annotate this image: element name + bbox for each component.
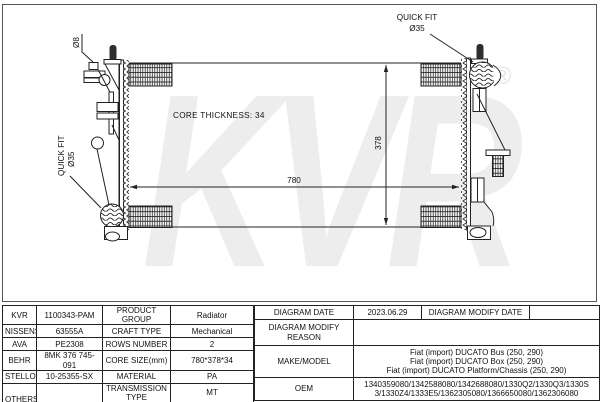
fin-block <box>421 64 461 86</box>
diagram-modify-date-value <box>530 306 600 320</box>
make-model-line: Fiat (import) DUCATO Bus (250, 290) <box>356 348 597 357</box>
oem-value: 1340359080/1342588080/1342688080/1330Q2/… <box>354 378 600 401</box>
brand-ava-label: AVA <box>3 338 37 351</box>
diagram-date-label: DIAGRAM DATE <box>255 306 354 320</box>
width-dimension-label: 780 <box>287 176 301 185</box>
diagram-modify-reason-label: DIAGRAM MODIFY REASON <box>255 320 354 346</box>
core-size-label: CORE SIZE(mm) <box>103 351 171 370</box>
quick-fit-left-diameter: Ø35 <box>67 151 76 167</box>
oem-label: OEM <box>255 378 354 401</box>
make-model-line: Fiat (import) DUCATO Platform/Chassis (2… <box>356 366 597 375</box>
transmission-type-value: MT <box>171 383 254 402</box>
brand-stellox-label: STELLOX <box>3 370 37 383</box>
radiator-drawing: KVR ® <box>0 0 600 305</box>
brand-behr-value: 8MK 376 745-091 <box>37 351 103 370</box>
table-row: BEHR 8MK 376 745-091 CORE SIZE(mm) 780*3… <box>3 351 254 370</box>
cross-reference-table: KVR 1100343-PAM PRODUCT GROUP Radiator N… <box>2 305 254 402</box>
table-row: MAKE/MODEL Fiat (import) DUCATO Bus (250… <box>255 346 600 378</box>
make-model-line: Fiat (import) DUCATO Box (250, 290) <box>356 357 597 366</box>
transmission-type-label: TRANSMISSION TYPE <box>103 383 171 402</box>
craft-type-label: CRAFT TYPE <box>103 325 171 338</box>
brand-behr-label: BEHR <box>3 351 37 370</box>
diagram-modify-reason-value <box>354 320 600 346</box>
bleed-bolt <box>110 45 117 61</box>
quick-fit-connector <box>101 204 124 227</box>
brand-others-label: OTHERS <box>3 383 37 402</box>
table-row: DIAGRAM DATE 2023.06.29 DIAGRAM MODIFY D… <box>255 306 600 320</box>
brand-kvr-value: 1100343-PAM <box>37 306 103 325</box>
material-label: MATERIAL <box>103 370 171 383</box>
brand-stellox-value: 10-25355-SX <box>37 370 103 383</box>
radiator-technical-diagram: KVR ® <box>0 0 600 402</box>
core-size-value: 780*378*34 <box>171 351 254 370</box>
table-row: AVA PE2308 ROWS NUMBER 2 <box>3 338 254 351</box>
table-row: STELLOX 10-25355-SX MATERIAL PA <box>3 370 254 383</box>
quick-fit-top-label: QUICK FIT <box>397 13 437 22</box>
brand-ava-value: PE2308 <box>37 338 103 351</box>
brand-nissens-value: 63555A <box>37 325 103 338</box>
diagram-info-table: DIAGRAM DATE 2023.06.29 DIAGRAM MODIFY D… <box>254 305 600 401</box>
brand-kvr-label: KVR <box>3 306 37 325</box>
fin-block <box>129 206 172 228</box>
table-row: NISSENS 63555A CRAFT TYPE Mechanical <box>3 325 254 338</box>
table-row: OEM 1340359080/1342588080/1342688080/133… <box>255 378 600 401</box>
table-row: OTHERS TRANSMISSION TYPE MT <box>3 383 254 402</box>
diagram-modify-date-label: DIAGRAM MODIFY DATE <box>422 306 530 320</box>
transmission-type-text: TRANSMISSION TYPE <box>105 384 168 402</box>
material-value: PA <box>171 370 254 383</box>
quick-fit-top-diameter: Ø35 <box>409 24 425 33</box>
make-model-value: Fiat (import) DUCATO Bus (250, 290) Fiat… <box>354 346 600 378</box>
fin-block <box>421 206 461 228</box>
table-row: DIAGRAM MODIFY REASON <box>255 320 600 346</box>
core-thickness-label: CORE THICKNESS: 34 <box>173 111 265 120</box>
brand-nissens-label: NISSENS <box>3 325 37 338</box>
rows-number-label: ROWS NUMBER <box>103 338 171 351</box>
spec-table: KVR 1100343-PAM PRODUCT GROUP Radiator N… <box>2 305 598 401</box>
height-dimension-label: 378 <box>374 136 383 150</box>
fin-block <box>129 64 172 86</box>
table-row: KVR 1100343-PAM PRODUCT GROUP Radiator <box>3 306 254 325</box>
bleed-bolt <box>477 44 484 60</box>
bolt-diameter-label: Ø8 <box>72 37 81 48</box>
rows-number-value: 2 <box>171 338 254 351</box>
product-group-value: Radiator <box>171 306 254 325</box>
make-model-label: MAKE/MODEL <box>255 346 354 378</box>
product-group-label: PRODUCT GROUP <box>103 306 171 325</box>
craft-type-value: Mechanical <box>171 325 254 338</box>
diagram-date-value: 2023.06.29 <box>354 306 422 320</box>
diagram-modify-reason-text: DIAGRAM MODIFY REASON <box>265 323 343 341</box>
brand-others-value <box>37 383 103 402</box>
quick-fit-left-label: QUICK FIT <box>57 136 66 176</box>
quick-fit-connector <box>470 62 496 88</box>
